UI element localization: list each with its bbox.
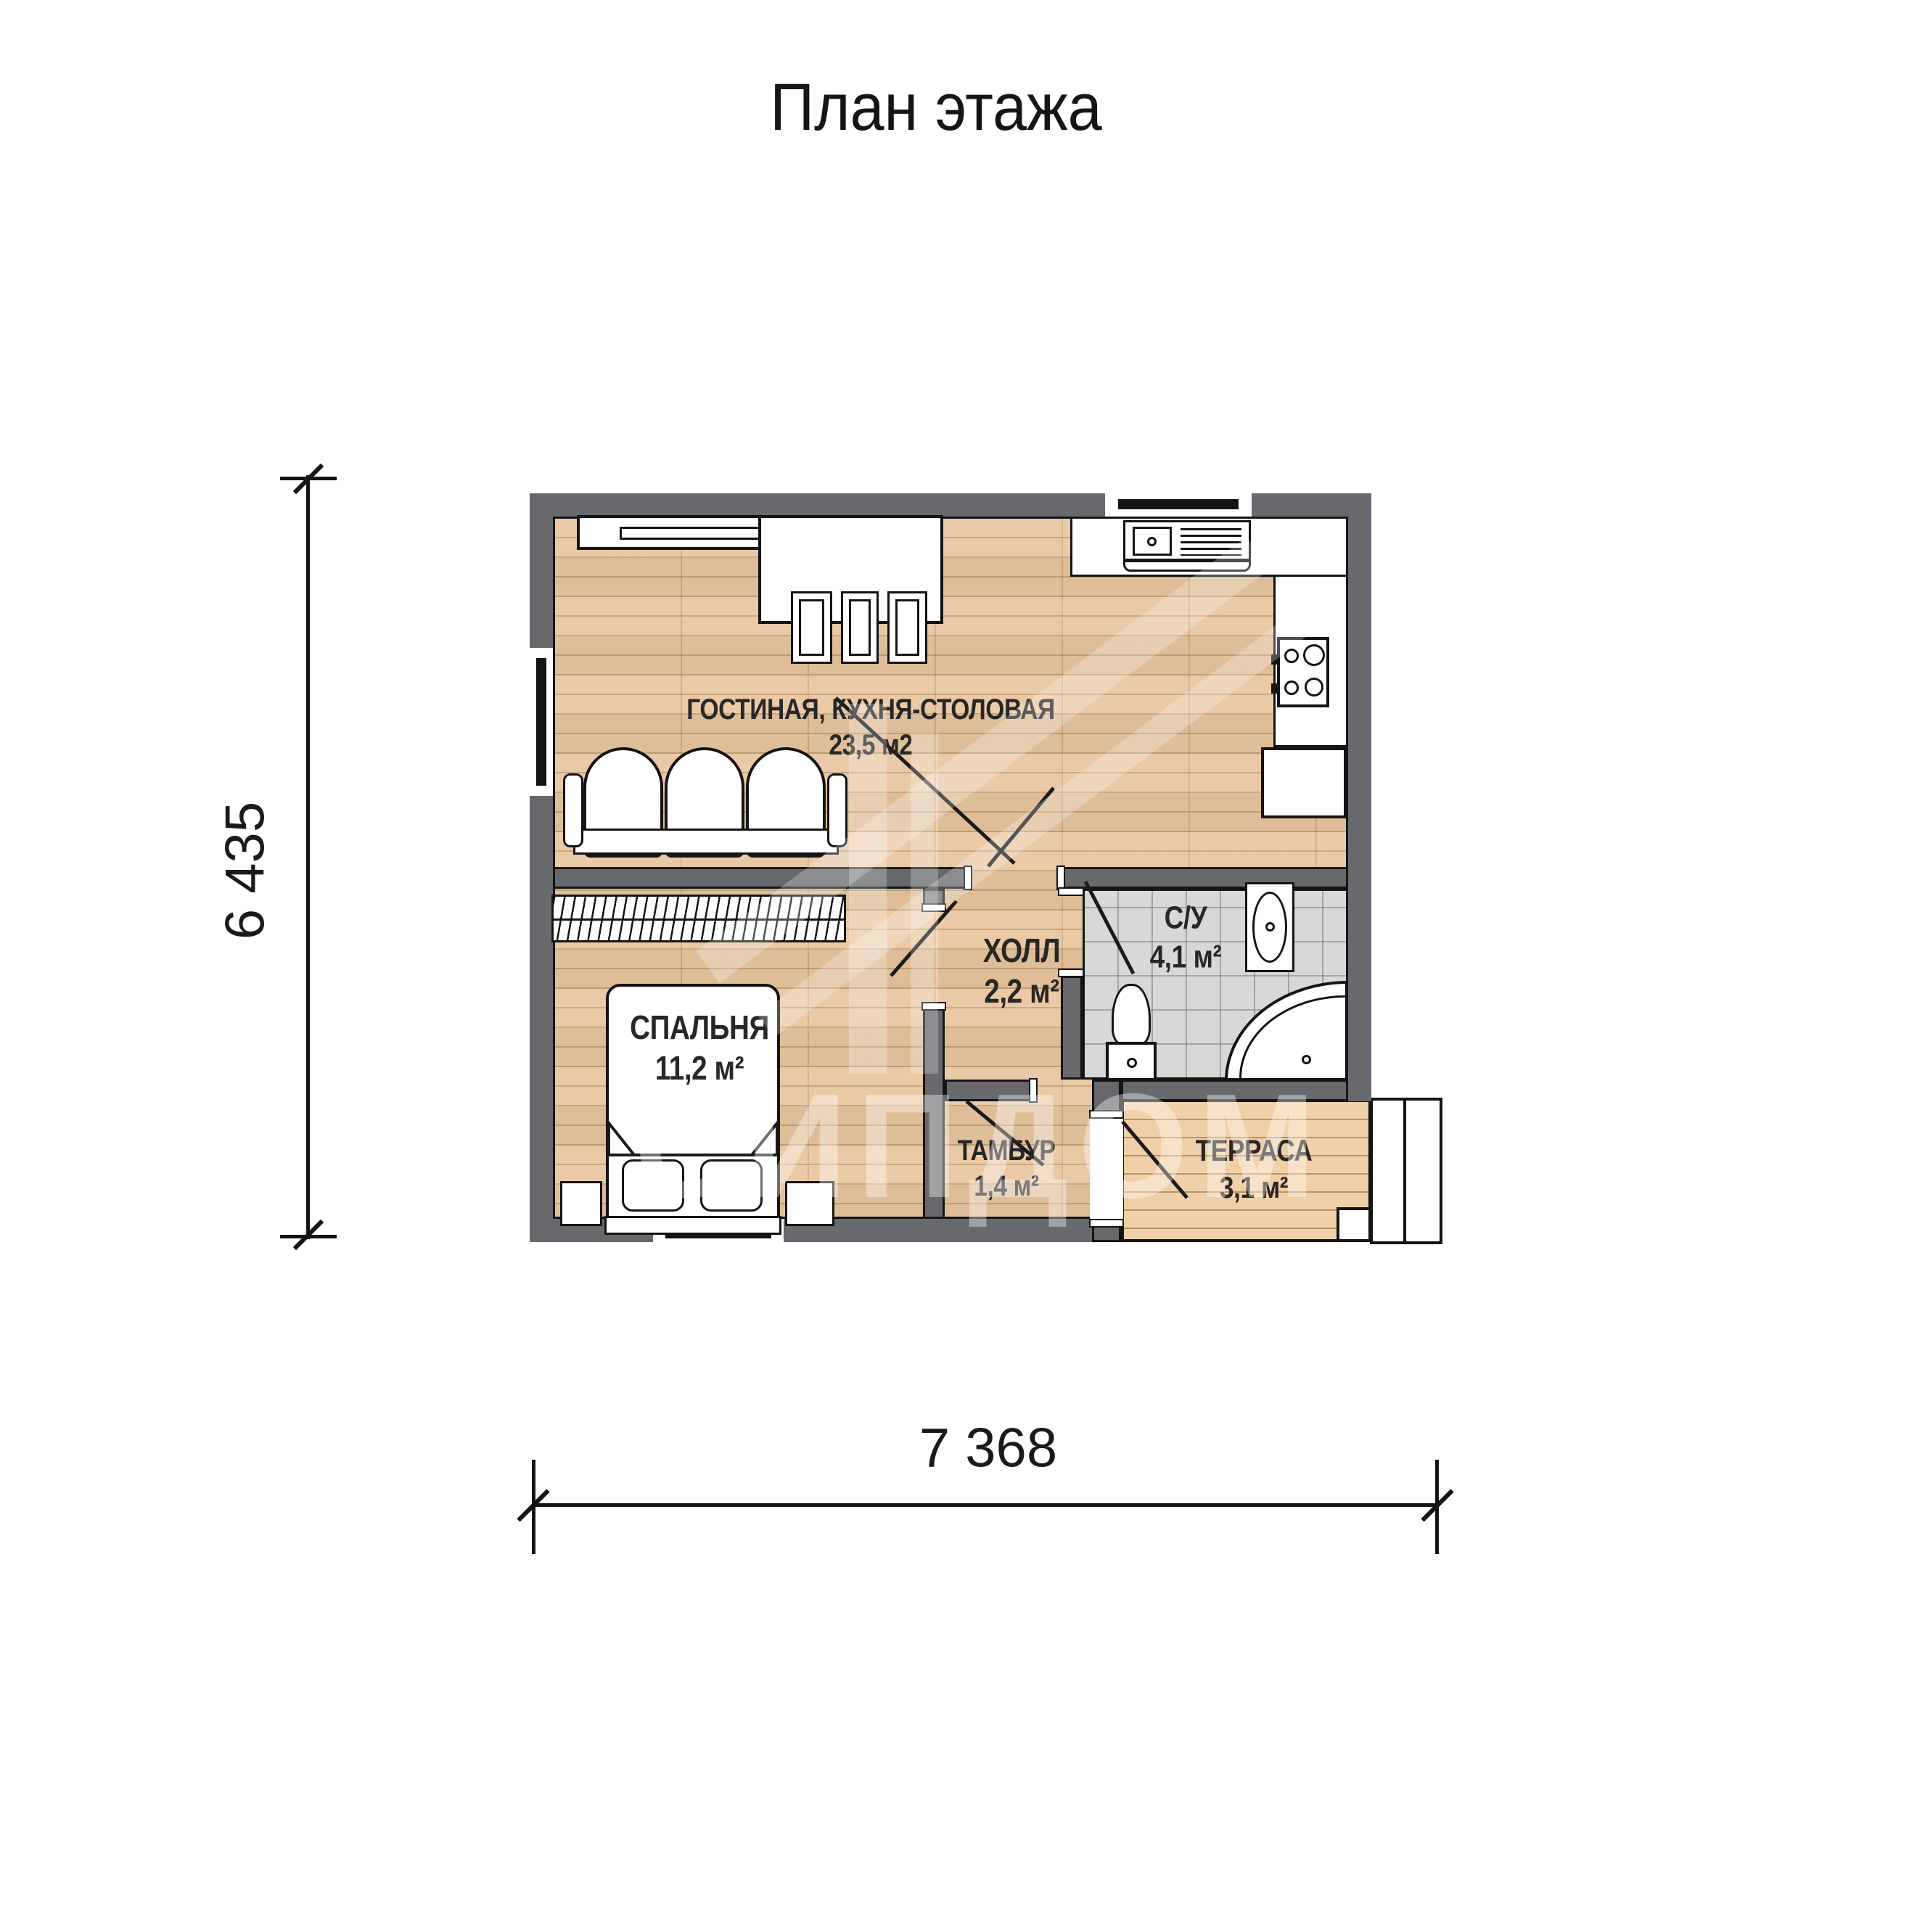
room-name: С/У	[1150, 898, 1222, 937]
terrace-steps	[1370, 1098, 1442, 1244]
room-area: 11,2 м²	[630, 1048, 769, 1088]
floor-plan: ГОСТИНАЯ, КУХНЯ-СТОЛОВАЯ 23,5 м2 СПАЛЬНЯ…	[530, 493, 1371, 1242]
room-area: 3,1 м²	[1196, 1169, 1313, 1206]
door-swing-line	[891, 901, 956, 976]
floor-plan-page: План этажа 6 435 7 368	[0, 0, 1909, 1932]
bed-fold	[752, 1123, 777, 1155]
room-name: ХОЛЛ	[983, 930, 1060, 971]
dim-width-label: 7 368	[919, 1417, 1057, 1480]
room-label-bedroom: СПАЛЬНЯ 11,2 м²	[630, 1007, 769, 1088]
room-area: 23,5 м2	[686, 728, 1055, 763]
room-label-bathroom: С/У 4,1 м²	[1150, 898, 1222, 976]
room-name: СПАЛЬНЯ	[630, 1007, 769, 1048]
door-swing-line	[988, 788, 1054, 866]
room-name: ГОСТИНАЯ, КУХНЯ-СТОЛОВАЯ	[686, 692, 1055, 728]
bed-fold	[609, 1123, 634, 1155]
room-area: 1,4 м²	[958, 1169, 1056, 1204]
door-swing-line	[1122, 1122, 1187, 1198]
door-swing-lines	[530, 493, 1371, 1242]
room-label-hall: ХОЛЛ 2,2 м²	[983, 930, 1060, 1011]
room-area: 2,2 м²	[983, 971, 1060, 1011]
dim-vertical-line	[306, 475, 310, 1239]
terrace-step-divider	[1403, 1101, 1406, 1241]
room-label-terrace: ТЕРРАСА 3,1 м²	[1196, 1132, 1313, 1206]
room-name: ТАМБУР	[958, 1133, 1056, 1169]
room-label-vestibule: ТАМБУР 1,4 м²	[958, 1133, 1056, 1204]
door-swing-line	[1085, 881, 1133, 974]
room-area: 4,1 м²	[1150, 937, 1222, 977]
room-name: ТЕРРАСА	[1196, 1132, 1313, 1169]
dim-height-label: 6 435	[214, 802, 277, 940]
dim-horizontal-line	[532, 1503, 1439, 1507]
room-label-living: ГОСТИНАЯ, КУХНЯ-СТОЛОВАЯ 23,5 м2	[686, 692, 1055, 763]
page-title: План этажа	[770, 70, 1101, 146]
